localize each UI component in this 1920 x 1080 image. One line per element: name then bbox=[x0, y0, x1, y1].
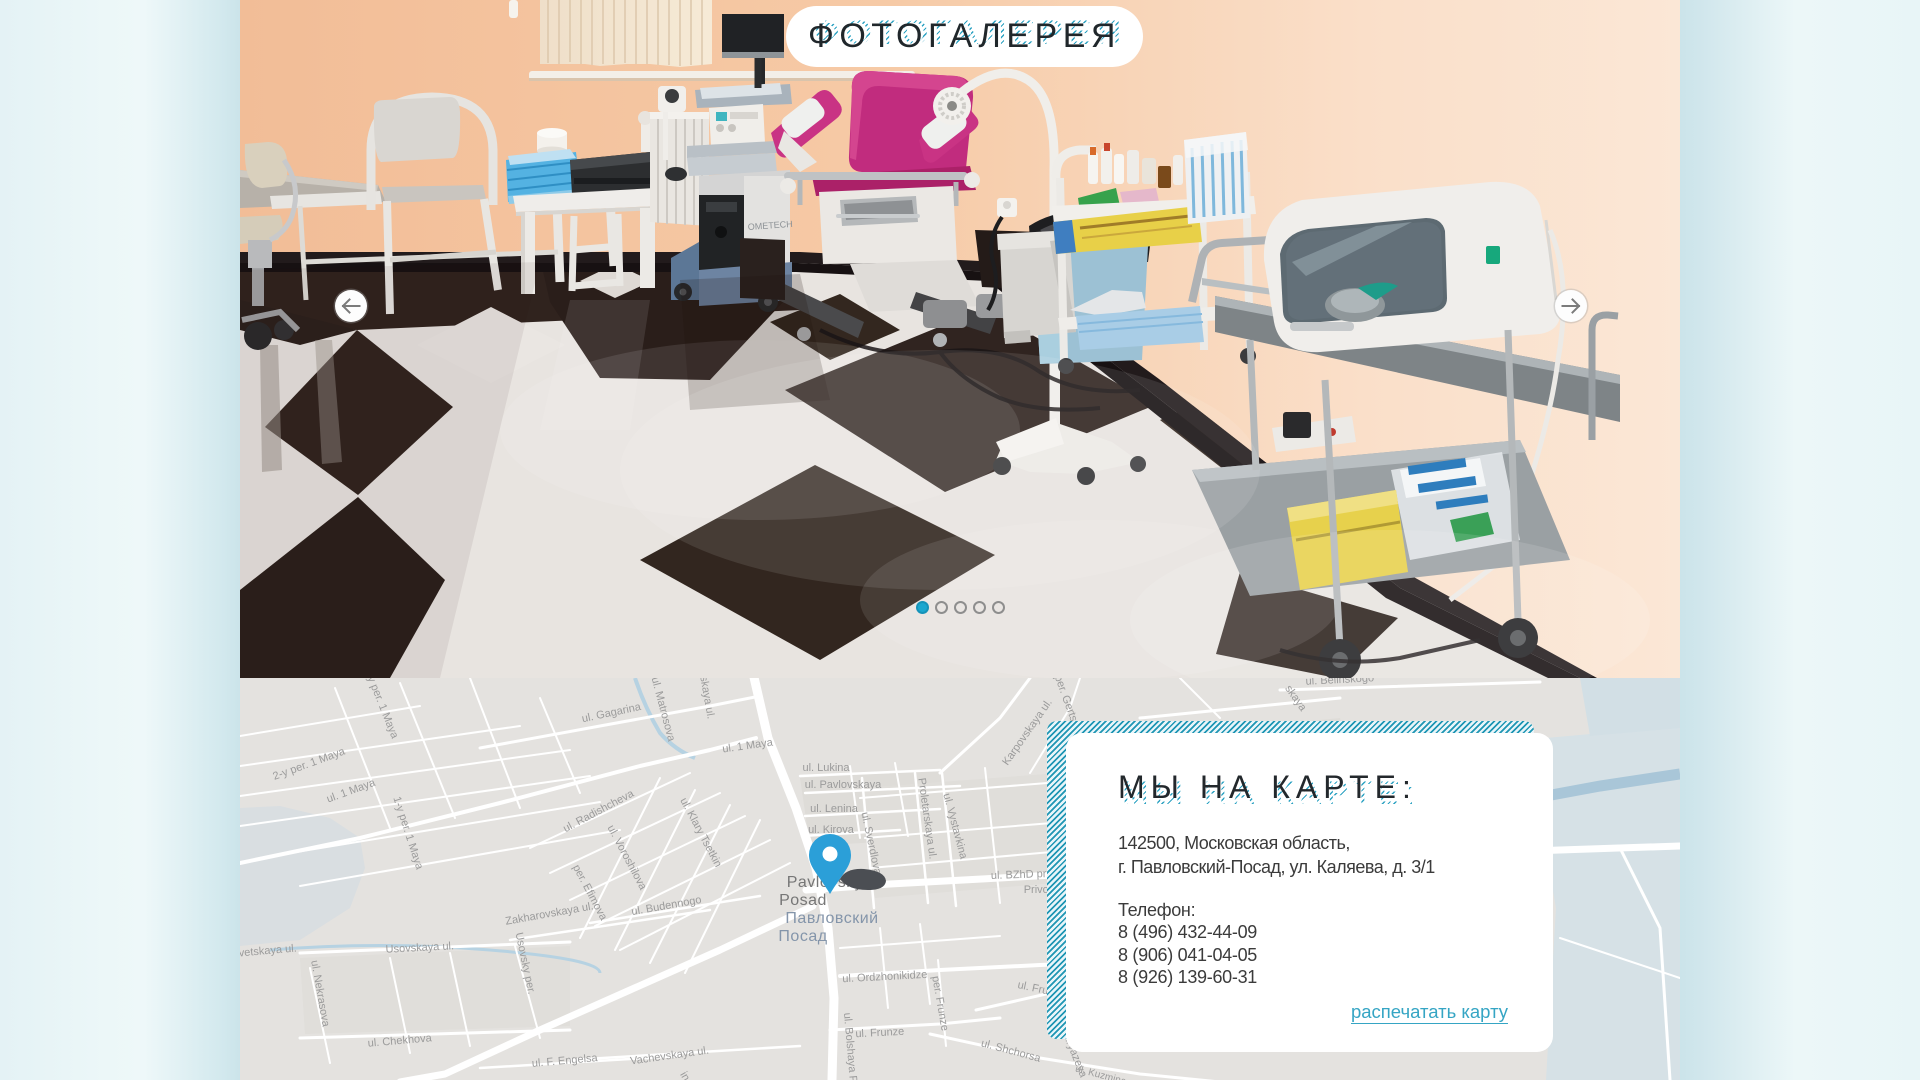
svg-text:Посад: Посад bbox=[778, 928, 827, 945]
svg-text:ul. Lukina: ul. Lukina bbox=[802, 762, 850, 774]
svg-text:ul. Lenina: ul. Lenina bbox=[810, 803, 859, 815]
svg-text:ul. Pavlovskaya: ul. Pavlovskaya bbox=[805, 779, 882, 791]
svg-text:Posad: Posad bbox=[779, 892, 827, 909]
svg-text:ul. BZhD pr.: ul. BZhD pr. bbox=[991, 868, 1049, 882]
svg-text:ul. Frunze: ul. Frunze bbox=[855, 1026, 904, 1041]
svg-text:Павловский: Павловский bbox=[785, 910, 878, 927]
